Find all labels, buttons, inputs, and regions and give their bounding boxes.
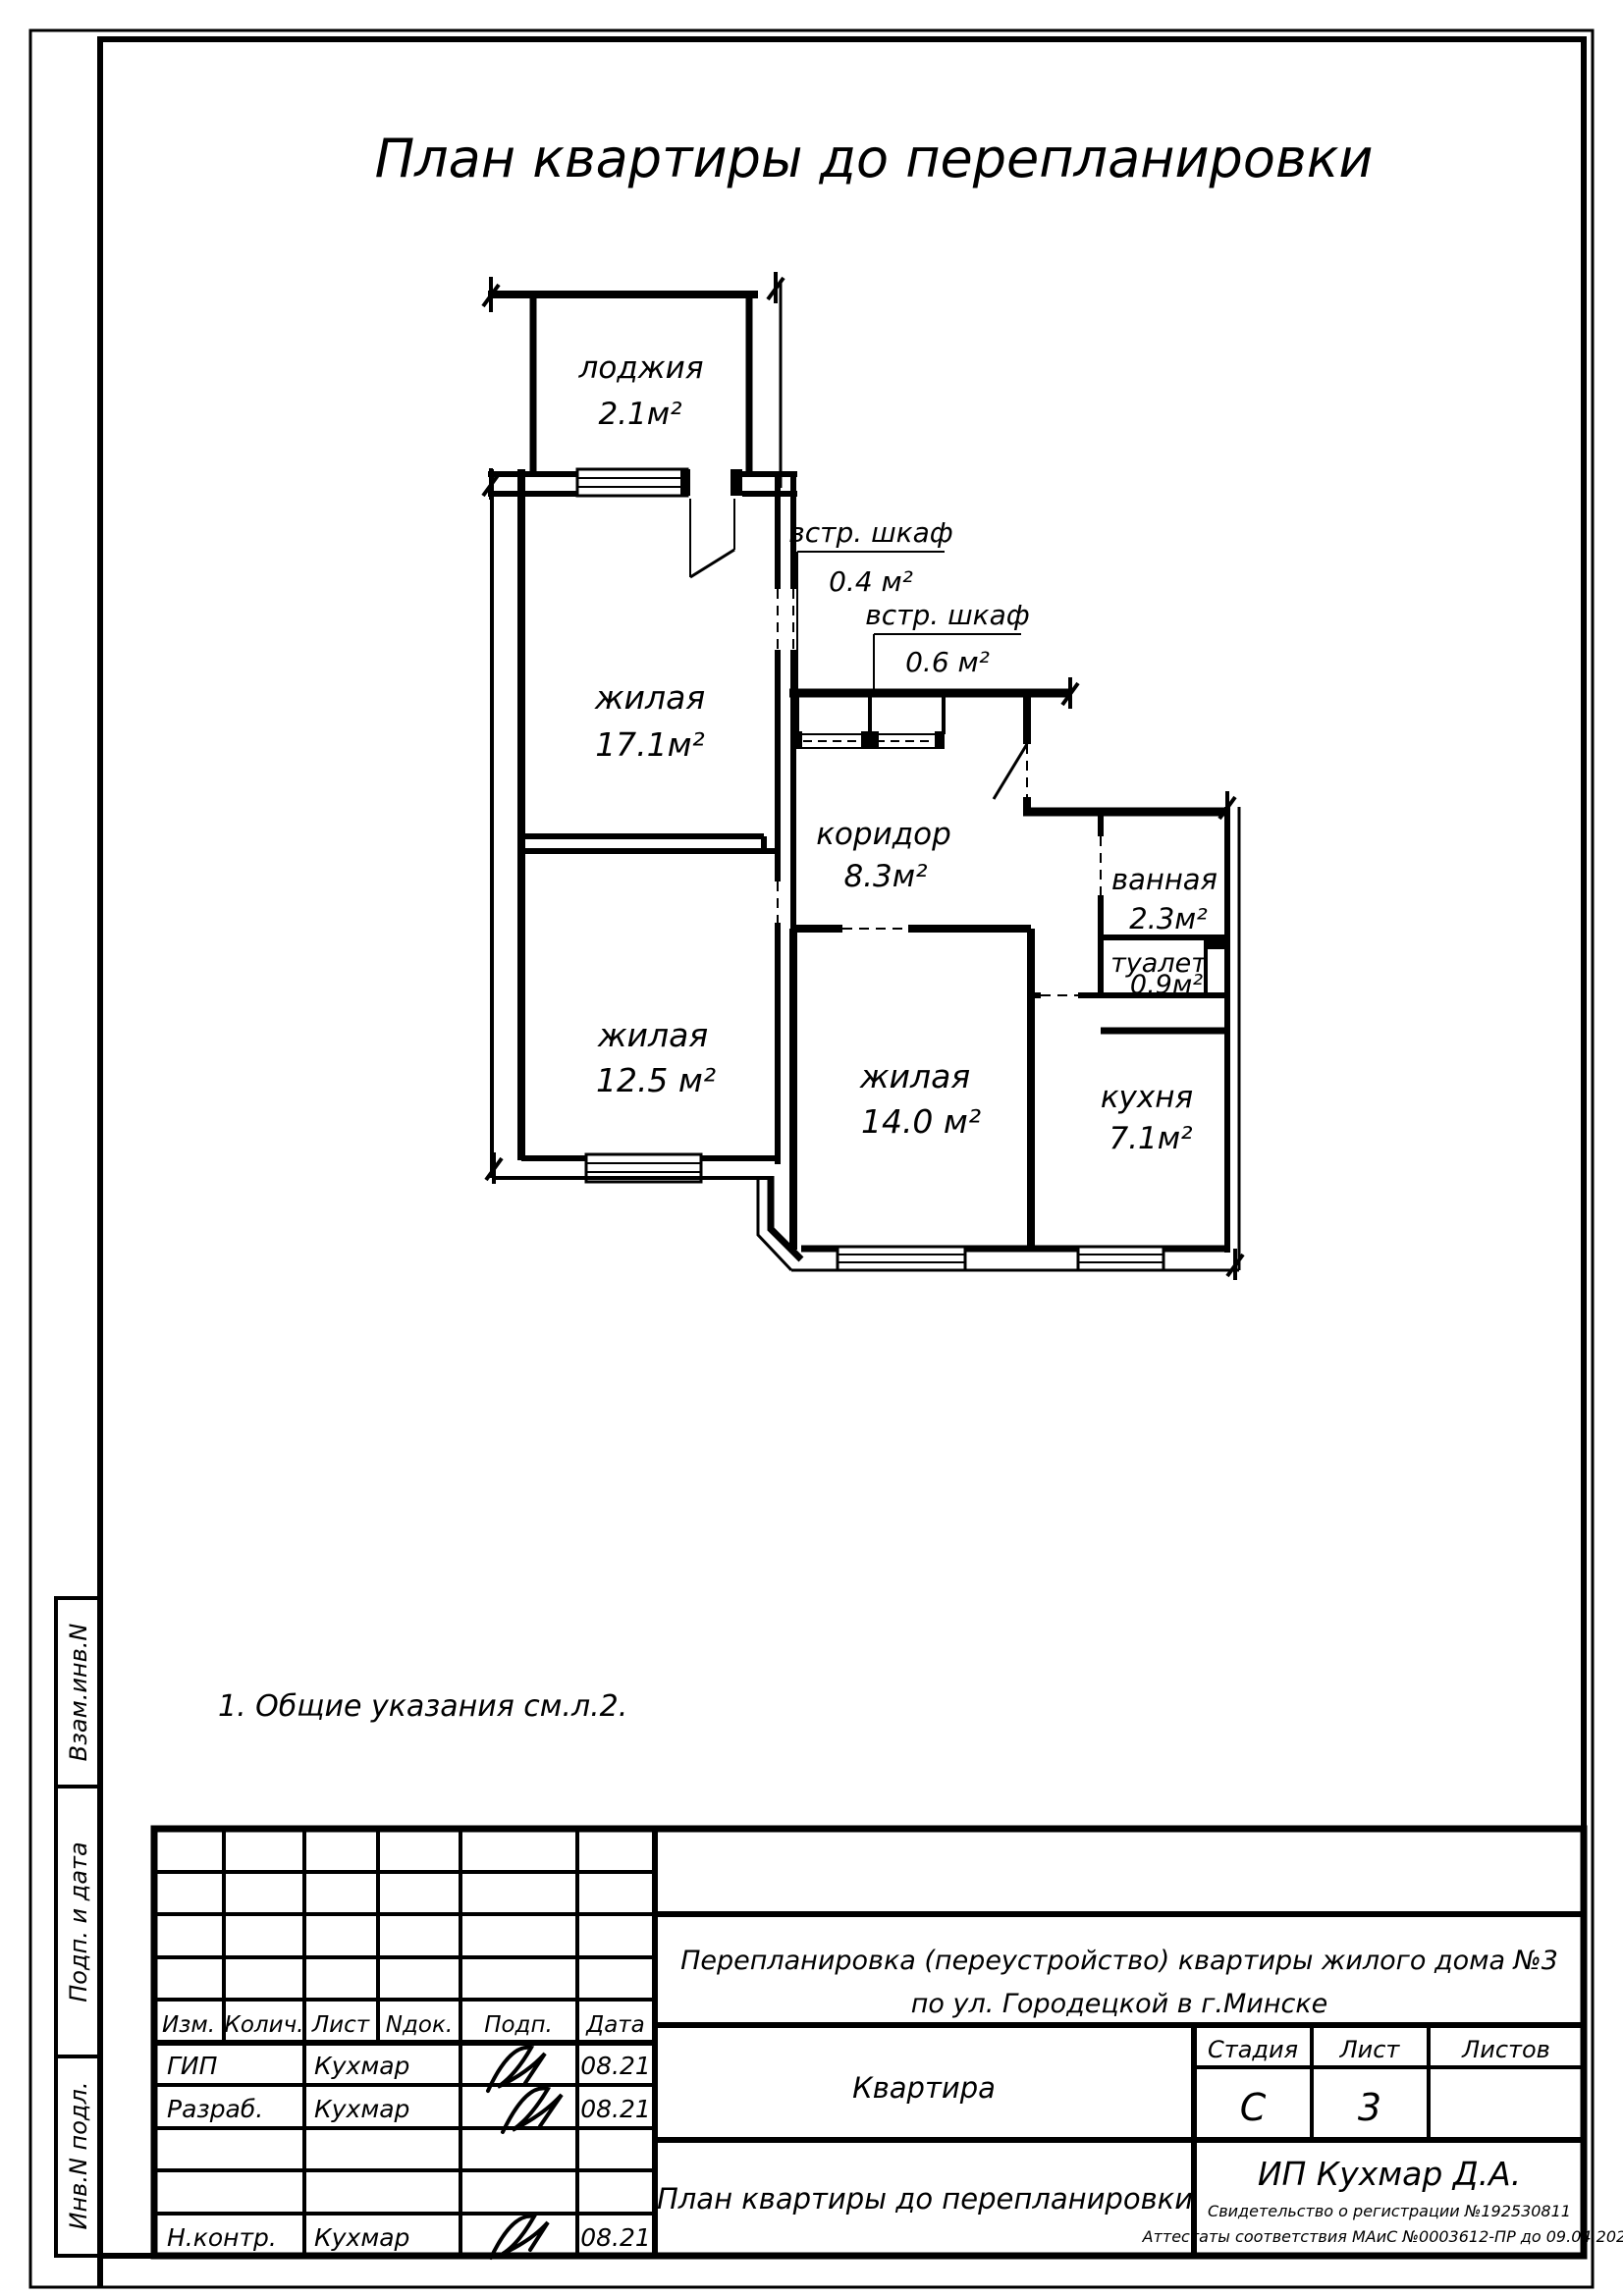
row-gip-name: Кухмар xyxy=(314,2052,409,2080)
room-label-living1: жилая xyxy=(594,678,705,717)
living2-bottom-wall xyxy=(496,1154,778,1182)
room-label-living3: жилая xyxy=(859,1057,970,1095)
doc-title: План квартиры до перепланировки xyxy=(657,2182,1193,2216)
room-labels: лоджия 2.1м² жилая 17.1м² встр. шкаф 0.4… xyxy=(578,350,1217,1156)
sheet-label: Лист xyxy=(1339,2036,1401,2063)
col-izm: Изм. xyxy=(162,2012,215,2038)
sheet-value: 3 xyxy=(1358,2086,1381,2129)
project-line2: по ул. Городецкой в г.Минске xyxy=(911,1989,1328,2019)
area-closet1: 0.4 м² xyxy=(829,565,913,598)
row-gip-role: ГИП xyxy=(167,2052,218,2080)
general-note: 1. Общие указания см.л.2. xyxy=(218,1689,627,1724)
room-area-living2: 12.5 м² xyxy=(596,1061,716,1099)
floor-plan: лоджия 2.1м² жилая 17.1м² встр. шкаф 0.4… xyxy=(483,272,1243,1280)
room-area-corridor: 8.3м² xyxy=(843,859,927,894)
col-list: Лист xyxy=(311,2012,370,2038)
room-label-loggia: лоджия xyxy=(578,350,704,386)
built-in-closets xyxy=(793,697,944,748)
room-label-corridor: коридор xyxy=(816,817,951,852)
stage-label: Стадия xyxy=(1208,2036,1298,2063)
room-area-living3: 14.0 м² xyxy=(861,1102,981,1141)
balcony-door-leaf xyxy=(690,550,734,577)
label-closet2: встр. шкаф xyxy=(865,599,1029,631)
row-nkontr-role: Н.контр. xyxy=(167,2223,277,2252)
stage-block: Стадия Лист Листов С 3 xyxy=(1208,2036,1550,2129)
bottom-wall xyxy=(791,1247,1239,1270)
signatures xyxy=(488,2048,562,2258)
room-area-bath: 2.3м² xyxy=(1129,902,1208,935)
left-exterior-wall xyxy=(492,469,521,1178)
living1-door-opening xyxy=(778,589,793,650)
room-area-kitchen: 7.1м² xyxy=(1109,1121,1192,1156)
margin-label-inv: Инв.N подл. xyxy=(65,2082,92,2230)
central-wall xyxy=(778,474,793,1250)
col-kol: Колич. xyxy=(225,2012,304,2038)
col-ndok: Nдок. xyxy=(386,2012,453,2038)
firm-block: ИП Кухмар Д.А. Свидетельство о регистрац… xyxy=(1142,2155,1623,2246)
room-area-wc: 0.9м² xyxy=(1130,970,1203,1000)
margin-label-vzam: Взам.инв.N xyxy=(65,1624,92,1762)
room-area-loggia: 2.1м² xyxy=(598,397,681,432)
title-block: Изм. Колич. Лист Nдок. Подп. Дата ГИП Ку… xyxy=(154,1829,1623,2258)
living1-living2-wall xyxy=(521,836,778,851)
label-closet1: встр. шкаф xyxy=(788,516,952,549)
firm-cert2: Аттестаты соответствия МАиС №0003612-ПР … xyxy=(1142,2227,1623,2246)
firm-name: ИП Кухмар Д.А. xyxy=(1258,2155,1521,2193)
row-razrab-date: 08.21 xyxy=(580,2095,651,2123)
row-nkontr-name: Кухмар xyxy=(314,2223,409,2252)
area-closet2: 0.6 м² xyxy=(905,646,990,678)
margin-label-podp: Подп. и дата xyxy=(65,1842,92,2002)
titleblock-headers: Изм. Колич. Лист Nдок. Подп. Дата xyxy=(162,2012,645,2038)
page-title: План квартиры до перепланировки xyxy=(375,128,1374,189)
vent-shaft xyxy=(1206,937,1227,949)
entrance xyxy=(994,693,1227,812)
col-data: Дата xyxy=(585,2012,645,2038)
drawing-svg: План квартиры до перепланировки xyxy=(0,0,1623,2296)
margin-stamps: Взам.инв.N Подп. и дата Инв.N подл. xyxy=(56,1598,100,2256)
row-razrab-role: Разраб. xyxy=(167,2095,263,2123)
firm-cert1: Свидетельство о регистрации №192530811 xyxy=(1208,2202,1571,2220)
room-area-living1: 17.1м² xyxy=(595,725,705,764)
stage-value: С xyxy=(1240,2086,1267,2129)
row-razrab-name: Кухмар xyxy=(314,2095,409,2123)
loggia-window-wall xyxy=(488,469,797,577)
sheets-label: Листов xyxy=(1461,2036,1550,2063)
row-nkontr-date: 08.21 xyxy=(580,2223,651,2252)
room-label-kitchen: кухня xyxy=(1101,1080,1193,1115)
drawing-sheet: План квартиры до перепланировки xyxy=(0,0,1623,2296)
row-gip-date: 08.21 xyxy=(580,2052,651,2080)
project-line1: Перепланировка (переустройство) квартиры… xyxy=(680,1946,1558,1976)
right-exterior-wall xyxy=(1227,807,1239,1270)
col-podp: Подп. xyxy=(484,2012,553,2038)
object-name: Квартира xyxy=(852,2071,996,2105)
entry-door-leaf xyxy=(994,744,1027,799)
room-label-bath: ванная xyxy=(1111,863,1217,896)
room-label-living2: жилая xyxy=(597,1016,708,1054)
